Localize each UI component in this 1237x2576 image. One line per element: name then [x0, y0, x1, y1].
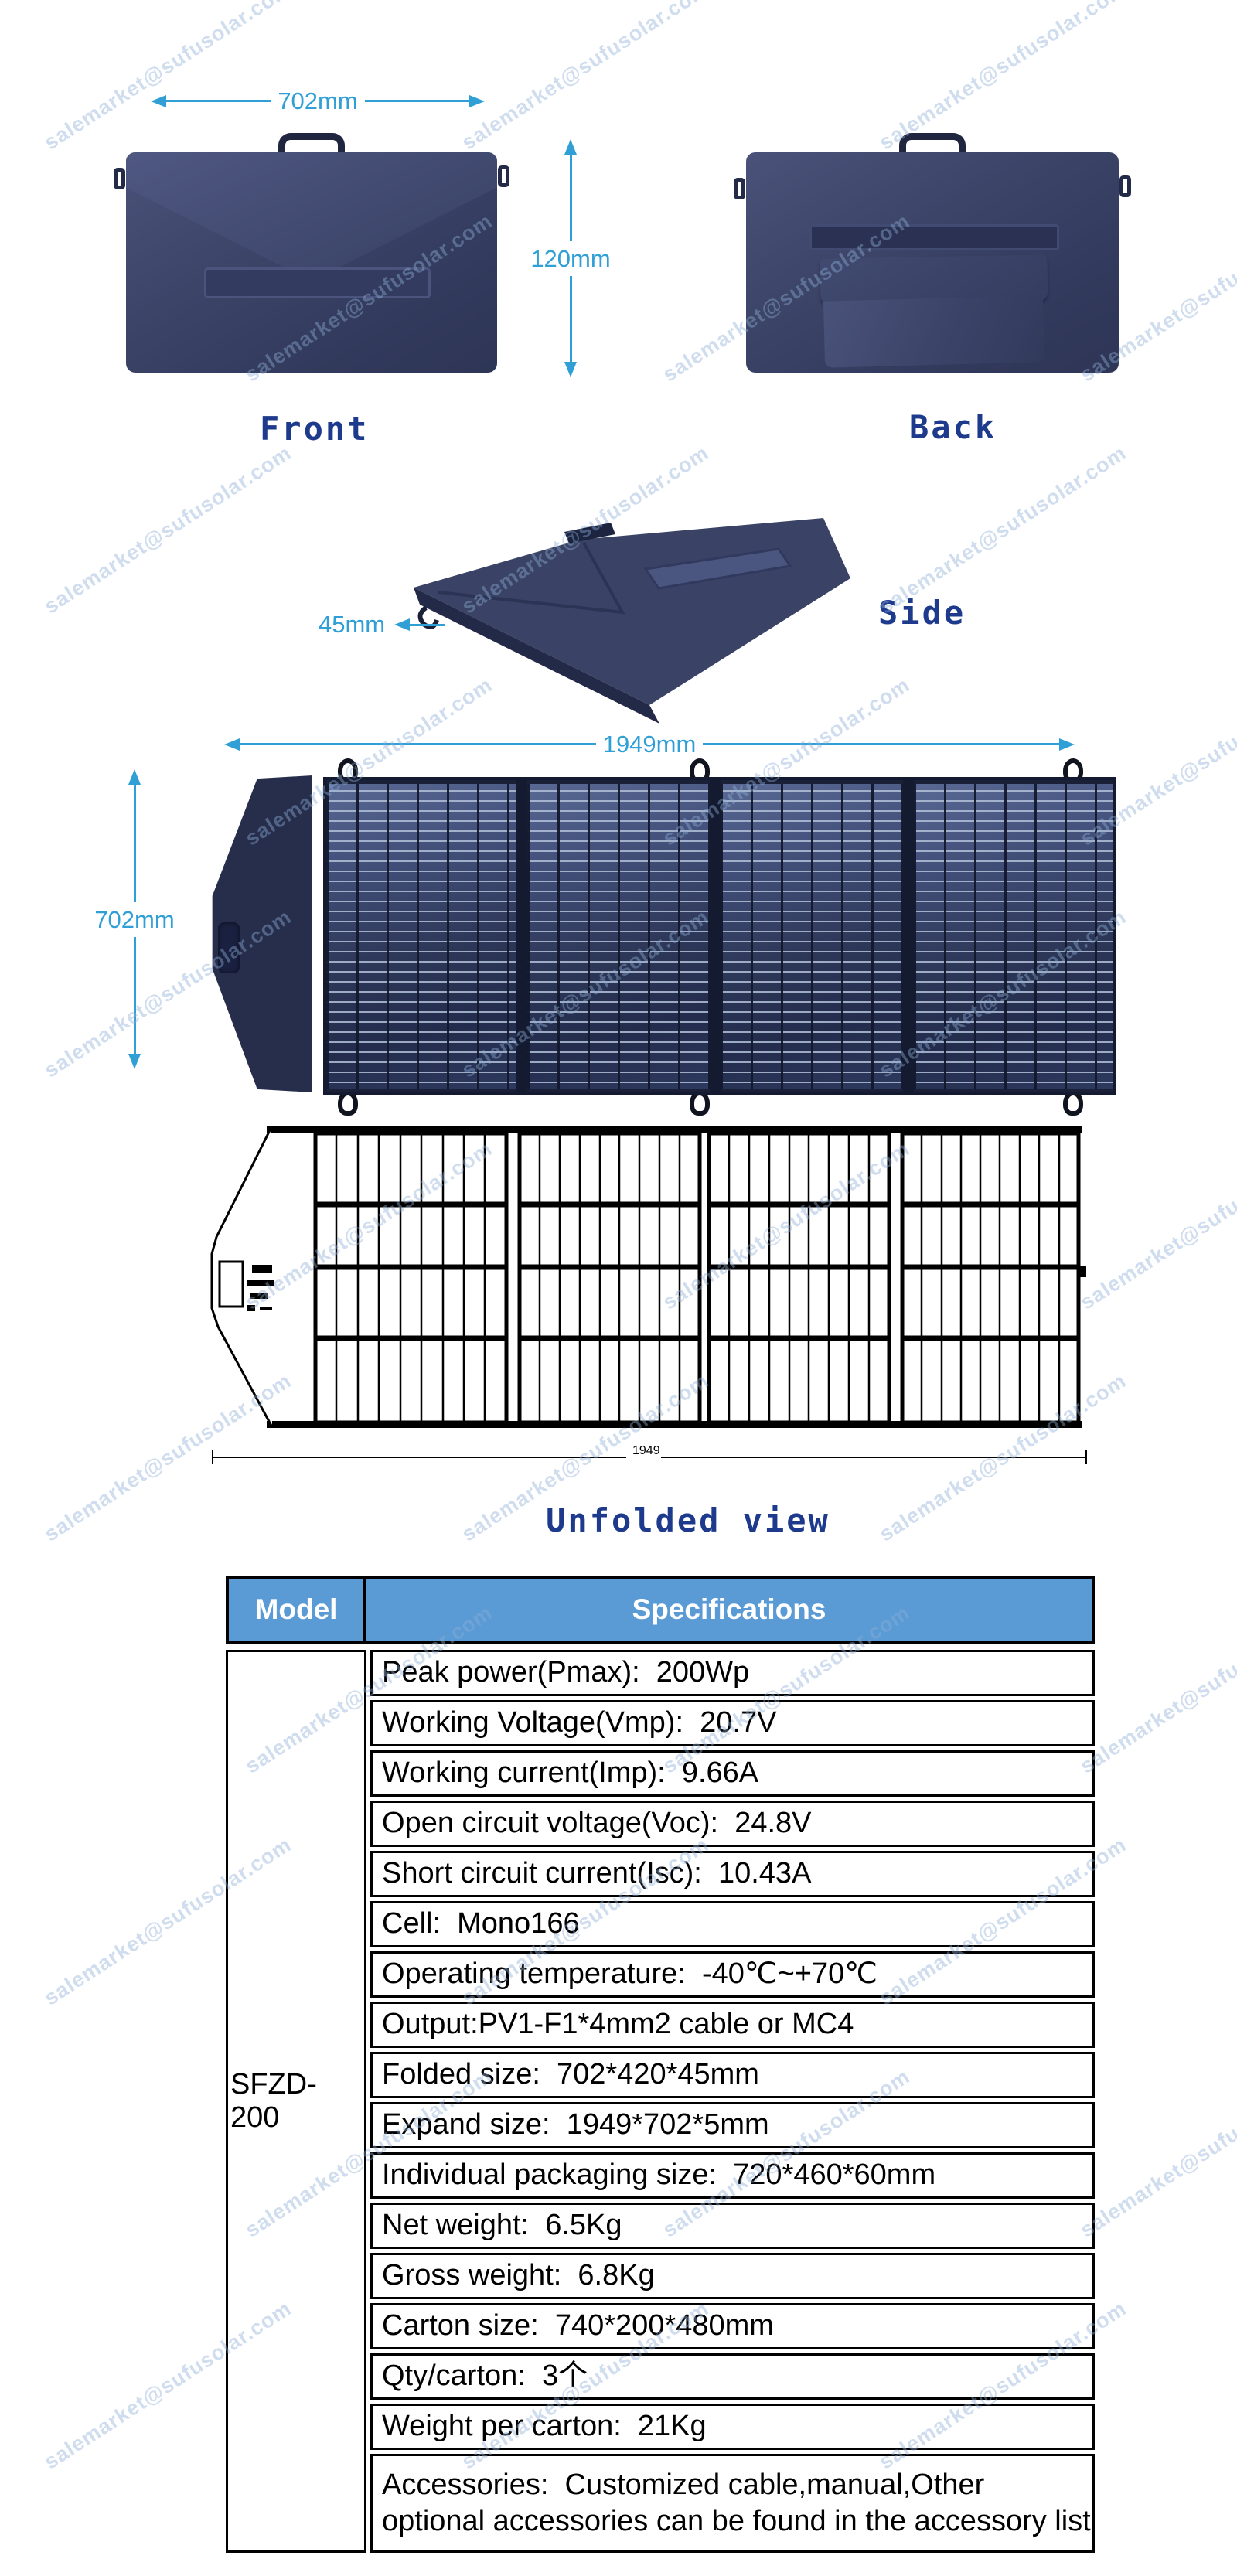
watermark-text: salemarket@sufusolar.com	[458, 0, 714, 155]
watermark-text: salemarket@sufusolar.com	[875, 441, 1131, 619]
d-ring-icon	[498, 165, 509, 187]
drawing-section-1	[315, 1133, 506, 1423]
spec-row: Folded size: 702*420*45mm	[370, 2052, 1095, 2098]
spec-row: Working Voltage(Vmp): 20.7V	[370, 1700, 1095, 1746]
dim-label: 45mm	[319, 611, 385, 639]
d-ring-icon	[1119, 175, 1131, 197]
watermark-text: salemarket@sufusolar.com	[875, 0, 1131, 155]
dimension-side-thickness: 45mm	[319, 611, 445, 639]
pocket-body	[823, 295, 1045, 367]
unfolded-photo	[210, 762, 1119, 1116]
watermark-text: salemarket@sufusolar.com	[1076, 2065, 1237, 2243]
folded-panel-shape	[414, 518, 850, 705]
velcro-strip	[204, 267, 431, 298]
arrow-up-icon	[564, 139, 577, 155]
dim-line	[240, 743, 596, 745]
spec-row: Cell: Mono166	[370, 1901, 1095, 1947]
arrow-right-icon	[469, 95, 485, 107]
spec-row: Weight per carton: 21Kg	[370, 2404, 1095, 2450]
spec-row: Accessories: Customized cable,manual,Oth…	[370, 2454, 1095, 2553]
dim-line	[570, 155, 572, 241]
spec-row: Peak power(Pmax): 200Wp	[370, 1650, 1095, 1696]
unfolded-drawing: 1949	[201, 1113, 1113, 1469]
d-ring-icon	[114, 168, 125, 189]
spec-row: Gross weight: 6.8Kg	[370, 2253, 1095, 2299]
velcro-strip	[809, 224, 1059, 250]
dim-line	[134, 937, 136, 1055]
solar-panel-4	[914, 780, 1113, 1092]
spec-row: Expand size: 1949*702*5mm	[370, 2102, 1095, 2148]
dim-label: 1949mm	[596, 732, 704, 756]
dim-line	[134, 785, 136, 902]
dimension-unfolded-height: 702mm	[102, 769, 167, 1069]
front-photo	[126, 133, 497, 373]
spec-row: Net weight: 6.5Kg	[370, 2203, 1095, 2249]
table-header-specs: Specifications	[366, 1579, 1092, 1641]
cover-flap	[210, 775, 312, 1092]
dim-label: 702mm	[271, 89, 364, 113]
side-label: Side	[878, 594, 966, 632]
dim-line	[365, 100, 469, 102]
unfolded-view-label: Unfolded view	[541, 1501, 835, 1539]
dim-label: 702mm	[94, 902, 174, 937]
spec-row: Short circuit current(Isc): 10.43A	[370, 1851, 1095, 1897]
dim-line	[166, 100, 271, 102]
arrow-down-icon	[564, 362, 577, 377]
spec-row: Qty/carton: 3个	[370, 2353, 1095, 2400]
arrow-right-icon	[1059, 738, 1075, 751]
solar-panel-1	[326, 780, 516, 1092]
solar-panel-2	[527, 780, 710, 1092]
side-photo	[390, 495, 854, 750]
drawing-junction-nub	[1079, 1266, 1086, 1277]
solar-panel-3	[721, 780, 903, 1092]
spec-row: Working current(Imp): 9.66A	[370, 1750, 1095, 1797]
spec-row: Individual packaging size: 720*460*60mm	[370, 2152, 1095, 2199]
dim-line	[410, 624, 445, 626]
d-ring-icon	[734, 178, 745, 199]
dimension-unfolded-width: 1949mm	[224, 732, 1075, 756]
drawing-dimension-label: 1949	[632, 1444, 660, 1457]
arrow-left-icon	[224, 738, 240, 751]
arrow-up-icon	[128, 769, 141, 785]
watermark-text: salemarket@sufusolar.com	[1076, 1601, 1237, 1779]
dim-line	[570, 276, 572, 363]
spec-table: Model Specifications SFZD-200 Peak power…	[226, 1576, 1095, 2553]
dimension-front-width: 702mm	[151, 89, 485, 113]
spec-row: Output:PV1-F1*4mm2 cable or MC4	[370, 2002, 1095, 2048]
table-header-model: Model	[229, 1579, 366, 1641]
flap-handle-slot	[218, 922, 240, 973]
drawing-section-2	[520, 1133, 700, 1423]
table-body: SFZD-200 Peak power(Pmax): 200Wp Working…	[226, 1650, 1095, 2553]
table-header-row: Model Specifications	[226, 1576, 1095, 1644]
arrow-left-icon	[151, 95, 166, 107]
drawing-section-3	[709, 1133, 889, 1423]
watermark-text: salemarket@sufusolar.com	[40, 441, 296, 619]
dim-label: 120mm	[530, 241, 610, 276]
back-label: Back	[909, 408, 997, 446]
spec-row: Open circuit voltage(Voc): 24.8V	[370, 1801, 1095, 1847]
drawing-section-4	[902, 1133, 1079, 1423]
arrow-down-icon	[128, 1054, 141, 1069]
spec-rows: Peak power(Pmax): 200Wp Working Voltage(…	[370, 1650, 1095, 2553]
spec-row: Operating temperature: -40℃~+70℃	[370, 1951, 1095, 1998]
spec-row: Carton size: 740*200*480mm	[370, 2303, 1095, 2349]
front-label: Front	[260, 410, 369, 448]
page: salemarket@sufusolar.comsalemarket@sufus…	[0, 0, 1237, 2576]
model-cell: SFZD-200	[226, 1650, 366, 2553]
back-photo	[746, 133, 1119, 373]
watermark-text: salemarket@sufusolar.com	[40, 0, 296, 155]
dimension-front-height: 120mm	[541, 139, 600, 377]
arrow-left-icon	[394, 618, 410, 631]
dim-line	[703, 743, 1059, 745]
drawing-row-bars	[315, 1205, 1079, 1338]
